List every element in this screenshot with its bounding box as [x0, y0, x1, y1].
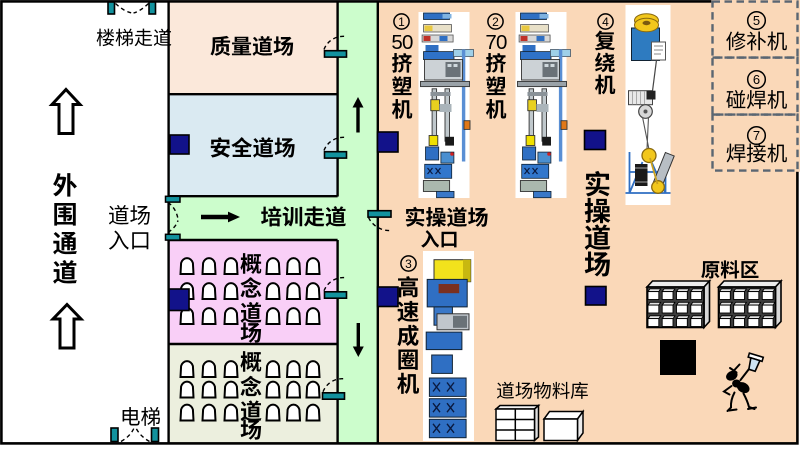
- svg-text:6: 6: [753, 72, 760, 87]
- svg-text:3: 3: [405, 257, 412, 271]
- svg-text:2: 2: [492, 15, 499, 29]
- svg-text:7: 7: [753, 128, 760, 143]
- svg-text:1: 1: [398, 15, 405, 29]
- svg-text:70: 70: [485, 31, 507, 54]
- svg-text:4: 4: [602, 15, 609, 29]
- svg-text:50: 50: [391, 31, 413, 54]
- svg-text:5: 5: [753, 13, 760, 28]
